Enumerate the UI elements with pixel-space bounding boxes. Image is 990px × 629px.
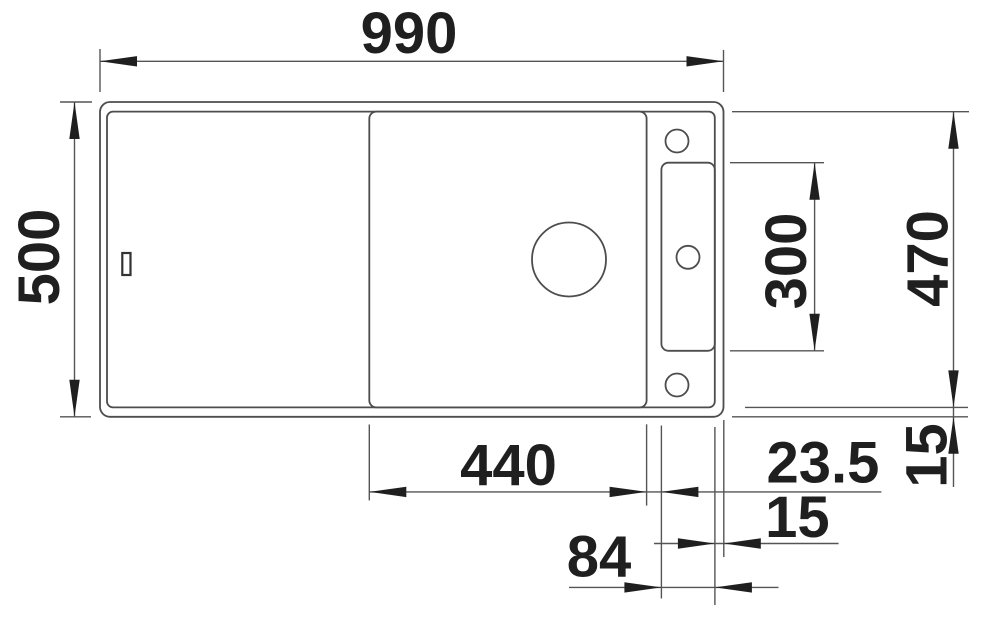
svg-text:990: 990 <box>361 1 458 66</box>
svg-text:84: 84 <box>567 525 632 590</box>
svg-text:15: 15 <box>765 485 830 550</box>
svg-text:470: 470 <box>896 210 961 307</box>
svg-text:300: 300 <box>754 213 819 310</box>
svg-text:440: 440 <box>460 433 557 498</box>
svg-text:15: 15 <box>894 423 959 488</box>
svg-text:500: 500 <box>7 209 72 306</box>
